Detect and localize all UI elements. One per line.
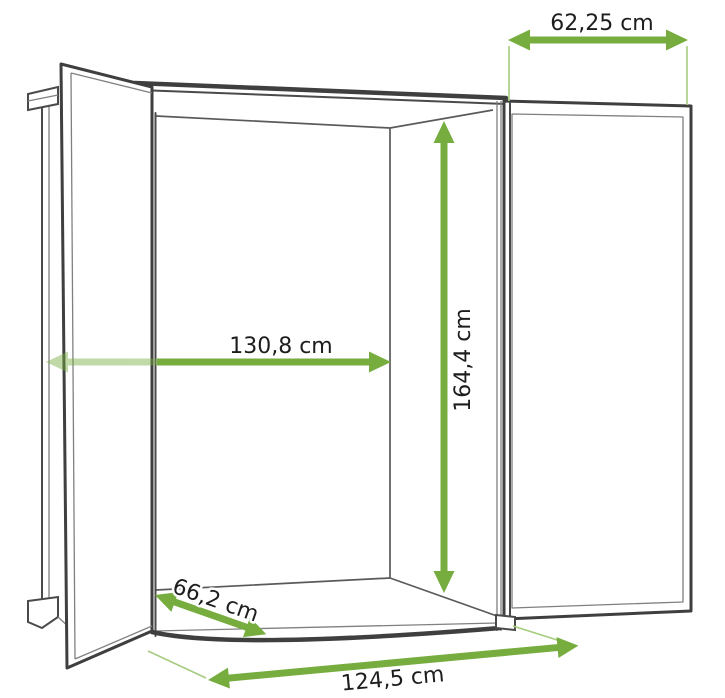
base-width-leader-left	[148, 651, 206, 678]
door-width-arrowhead-left	[508, 30, 530, 51]
wardrobe-dimension-diagram: 62,25 cm 130,8 cm 164,4 cm 66,2 cm	[0, 0, 725, 698]
door-width-arrowhead-right	[666, 30, 688, 51]
door-width-label: 62,25 cm	[550, 11, 654, 36]
base-width-arrowhead-right	[557, 635, 580, 658]
interior-width-label: 130,8 cm	[229, 334, 333, 359]
base-width-arrowhead-left	[207, 668, 230, 691]
interior-height-label: 164,4 cm	[451, 308, 476, 412]
dimension-door-width: 62,25 cm	[508, 11, 688, 105]
right-door-panel	[504, 101, 691, 619]
dimension-base-width: 124,5 cm	[207, 635, 581, 698]
diagram-stage: 62,25 cm 130,8 cm 164,4 cm 66,2 cm	[0, 0, 725, 698]
right-door	[496, 101, 691, 630]
left-door	[61, 64, 152, 668]
